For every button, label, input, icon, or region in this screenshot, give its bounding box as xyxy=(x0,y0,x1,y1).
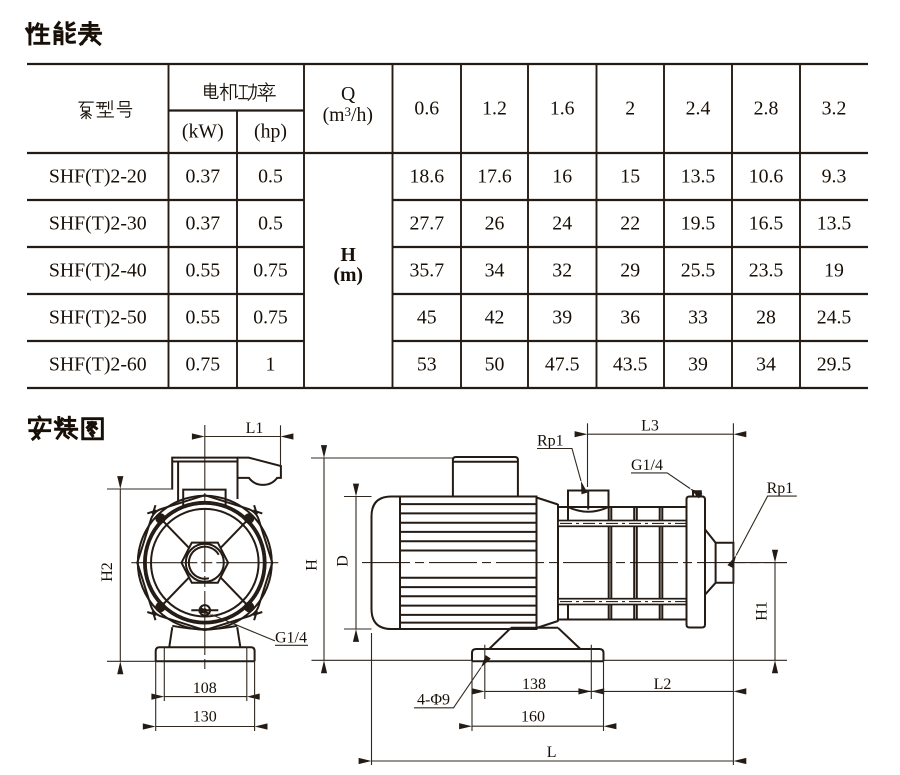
svg-text:1.6: 1.6 xyxy=(550,98,575,120)
svg-text:0.5: 0.5 xyxy=(258,166,283,188)
svg-text:H: H xyxy=(341,244,357,266)
svg-text:1.2: 1.2 xyxy=(482,98,507,120)
svg-text:(kW): (kW) xyxy=(182,121,224,143)
svg-text:0.5: 0.5 xyxy=(258,213,283,235)
svg-text:0.37: 0.37 xyxy=(185,166,220,188)
svg-text:16.5: 16.5 xyxy=(749,213,784,235)
svg-text:43.5: 43.5 xyxy=(613,354,648,376)
svg-text:Rp1: Rp1 xyxy=(767,480,794,497)
svg-text:108: 108 xyxy=(193,680,217,697)
svg-text:16: 16 xyxy=(552,166,572,188)
svg-text:45: 45 xyxy=(417,307,437,329)
svg-text:36: 36 xyxy=(620,307,640,329)
svg-text:18.6: 18.6 xyxy=(409,166,444,188)
svg-text:19: 19 xyxy=(824,260,844,282)
svg-text:SHF(T)2-30: SHF(T)2-30 xyxy=(49,213,147,235)
svg-text:29.5: 29.5 xyxy=(817,354,852,376)
svg-text:L3: L3 xyxy=(641,418,659,435)
svg-text:0.55: 0.55 xyxy=(185,307,220,329)
svg-text:24: 24 xyxy=(552,213,572,235)
svg-text:130: 130 xyxy=(193,709,217,726)
svg-text:2.4: 2.4 xyxy=(686,98,711,120)
svg-text:10.6: 10.6 xyxy=(749,166,784,188)
svg-text:0.75: 0.75 xyxy=(253,260,288,282)
svg-text:D: D xyxy=(335,555,352,567)
svg-text:H: H xyxy=(304,559,321,571)
svg-text:SHF(T)2-20: SHF(T)2-20 xyxy=(49,166,147,188)
svg-text:2: 2 xyxy=(625,98,635,120)
svg-text:L2: L2 xyxy=(654,676,672,693)
svg-text:G1/4: G1/4 xyxy=(275,629,307,646)
svg-text:SHF(T)2-50: SHF(T)2-50 xyxy=(49,307,147,329)
svg-text:15: 15 xyxy=(620,166,640,188)
svg-text:33: 33 xyxy=(688,307,708,329)
svg-text:27.7: 27.7 xyxy=(409,213,444,235)
svg-text:L: L xyxy=(547,744,557,761)
svg-text:13.5: 13.5 xyxy=(817,213,852,235)
svg-text:Rp1: Rp1 xyxy=(537,433,564,450)
svg-text:24.5: 24.5 xyxy=(817,307,852,329)
svg-text:29: 29 xyxy=(620,260,640,282)
svg-text:0.6: 0.6 xyxy=(414,98,439,120)
svg-text:39: 39 xyxy=(552,307,572,329)
svg-text:138: 138 xyxy=(522,676,546,693)
svg-text:17.6: 17.6 xyxy=(477,166,512,188)
svg-text:32: 32 xyxy=(552,260,572,282)
svg-text:47.5: 47.5 xyxy=(545,354,580,376)
svg-text:0.37: 0.37 xyxy=(185,213,220,235)
svg-text:0.55: 0.55 xyxy=(185,260,220,282)
svg-text:50: 50 xyxy=(485,354,505,376)
svg-text:1: 1 xyxy=(266,354,276,376)
svg-text:H2: H2 xyxy=(99,562,116,582)
svg-text:9.3: 9.3 xyxy=(822,166,847,188)
svg-text:22: 22 xyxy=(620,213,640,235)
svg-text:L1: L1 xyxy=(246,420,264,437)
svg-text:28: 28 xyxy=(756,307,776,329)
svg-text:G1/4: G1/4 xyxy=(631,457,663,474)
svg-text:39: 39 xyxy=(688,354,708,376)
svg-text:3.2: 3.2 xyxy=(822,98,847,120)
svg-text:Q: Q xyxy=(341,83,355,105)
svg-text:35.7: 35.7 xyxy=(409,260,444,282)
svg-text:53: 53 xyxy=(417,354,437,376)
svg-text:0.75: 0.75 xyxy=(185,354,220,376)
svg-text:(m): (m) xyxy=(333,264,363,286)
svg-text:13.5: 13.5 xyxy=(681,166,716,188)
svg-text:42: 42 xyxy=(485,307,505,329)
svg-text:34: 34 xyxy=(485,260,505,282)
svg-text:SHF(T)2-60: SHF(T)2-60 xyxy=(49,354,147,376)
svg-text:23.5: 23.5 xyxy=(749,260,784,282)
svg-text:0.75: 0.75 xyxy=(253,307,288,329)
svg-text:34: 34 xyxy=(756,354,776,376)
svg-text:(hp): (hp) xyxy=(254,121,287,143)
svg-text:26: 26 xyxy=(485,213,505,235)
svg-text:2.8: 2.8 xyxy=(754,98,779,120)
svg-text:(m3/h): (m3/h) xyxy=(323,104,373,126)
svg-text:19.5: 19.5 xyxy=(681,213,716,235)
svg-text:4-Φ9: 4-Φ9 xyxy=(417,692,450,709)
svg-text:160: 160 xyxy=(521,709,545,726)
svg-text:SHF(T)2-40: SHF(T)2-40 xyxy=(49,260,147,282)
svg-text:H1: H1 xyxy=(754,601,771,621)
svg-text:25.5: 25.5 xyxy=(681,260,716,282)
